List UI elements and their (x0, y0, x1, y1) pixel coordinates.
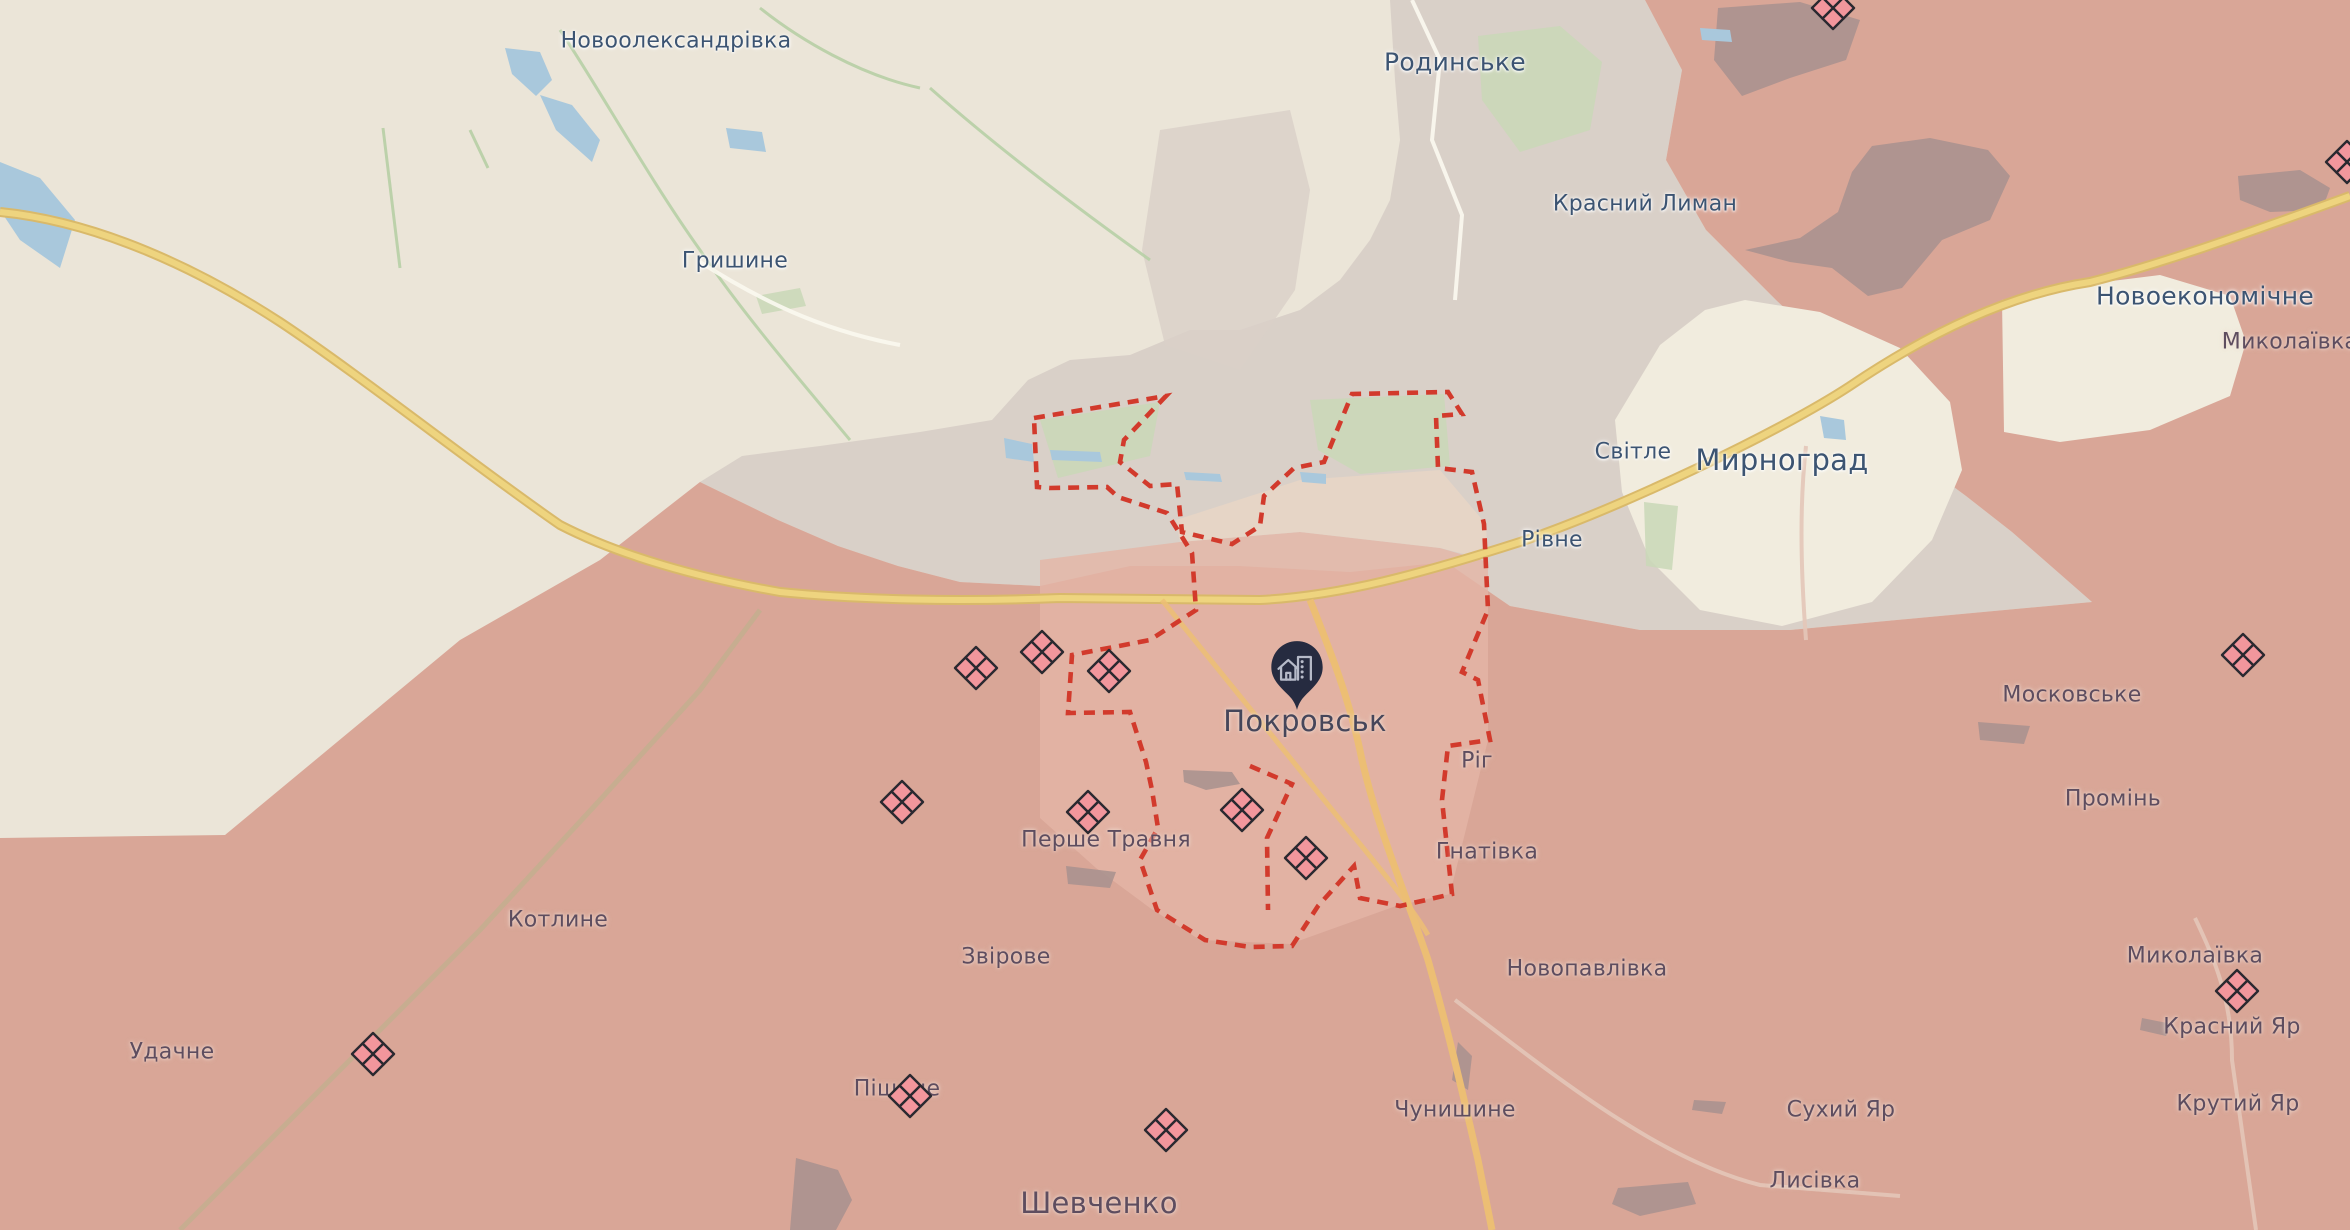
clash-quartered-diamond-icon[interactable] (886, 1072, 934, 1120)
clash-quartered-diamond-icon[interactable] (878, 778, 926, 826)
clash-quartered-diamond-icon[interactable] (2213, 967, 2261, 1015)
clash-quartered-diamond-icon[interactable] (1064, 788, 1112, 836)
city-location-pin-icon[interactable] (1264, 638, 1330, 714)
clash-quartered-diamond-icon[interactable] (1018, 628, 1066, 676)
clash-quartered-diamond-icon[interactable] (1282, 834, 1330, 882)
clash-quartered-diamond-icon[interactable] (349, 1030, 397, 1078)
clash-quartered-diamond-icon[interactable] (1218, 786, 1266, 834)
clash-quartered-diamond-icon[interactable] (1085, 647, 1133, 695)
clash-quartered-diamond-icon[interactable] (2323, 138, 2350, 186)
clash-quartered-diamond-icon[interactable] (1809, 0, 1857, 32)
clash-quartered-diamond-icon[interactable] (2219, 631, 2267, 679)
clash-quartered-diamond-icon[interactable] (952, 644, 1000, 692)
map-canvas[interactable]: НовоолександрівкаРодинськеКрасний ЛиманГ… (0, 0, 2350, 1230)
clash-quartered-diamond-icon[interactable] (1142, 1106, 1190, 1154)
